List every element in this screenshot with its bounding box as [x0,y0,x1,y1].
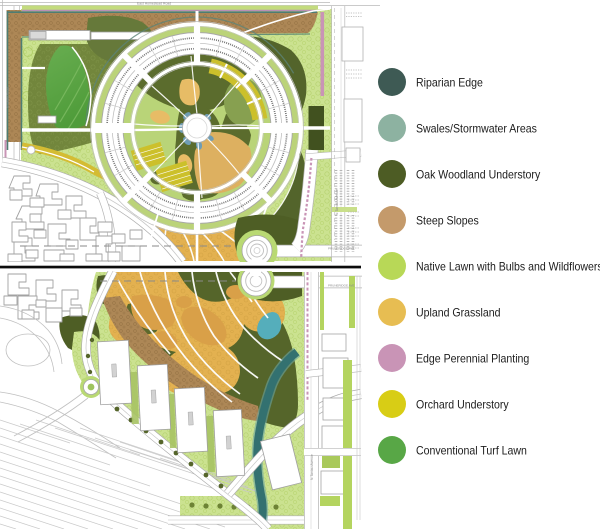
svg-text:N Wolfe Road: N Wolfe Road [6,87,10,108]
svg-text:PRUNERIDGE AVE: PRUNERIDGE AVE [328,284,354,288]
svg-text:East Homestead Road: East Homestead Road [137,2,171,6]
svg-text:N Tantau Avenue: N Tantau Avenue [335,189,339,215]
svg-text:N Tantau Avenue: N Tantau Avenue [310,454,314,480]
svg-text:PRUNERIDGE AVE: PRUNERIDGE AVE [328,247,354,251]
